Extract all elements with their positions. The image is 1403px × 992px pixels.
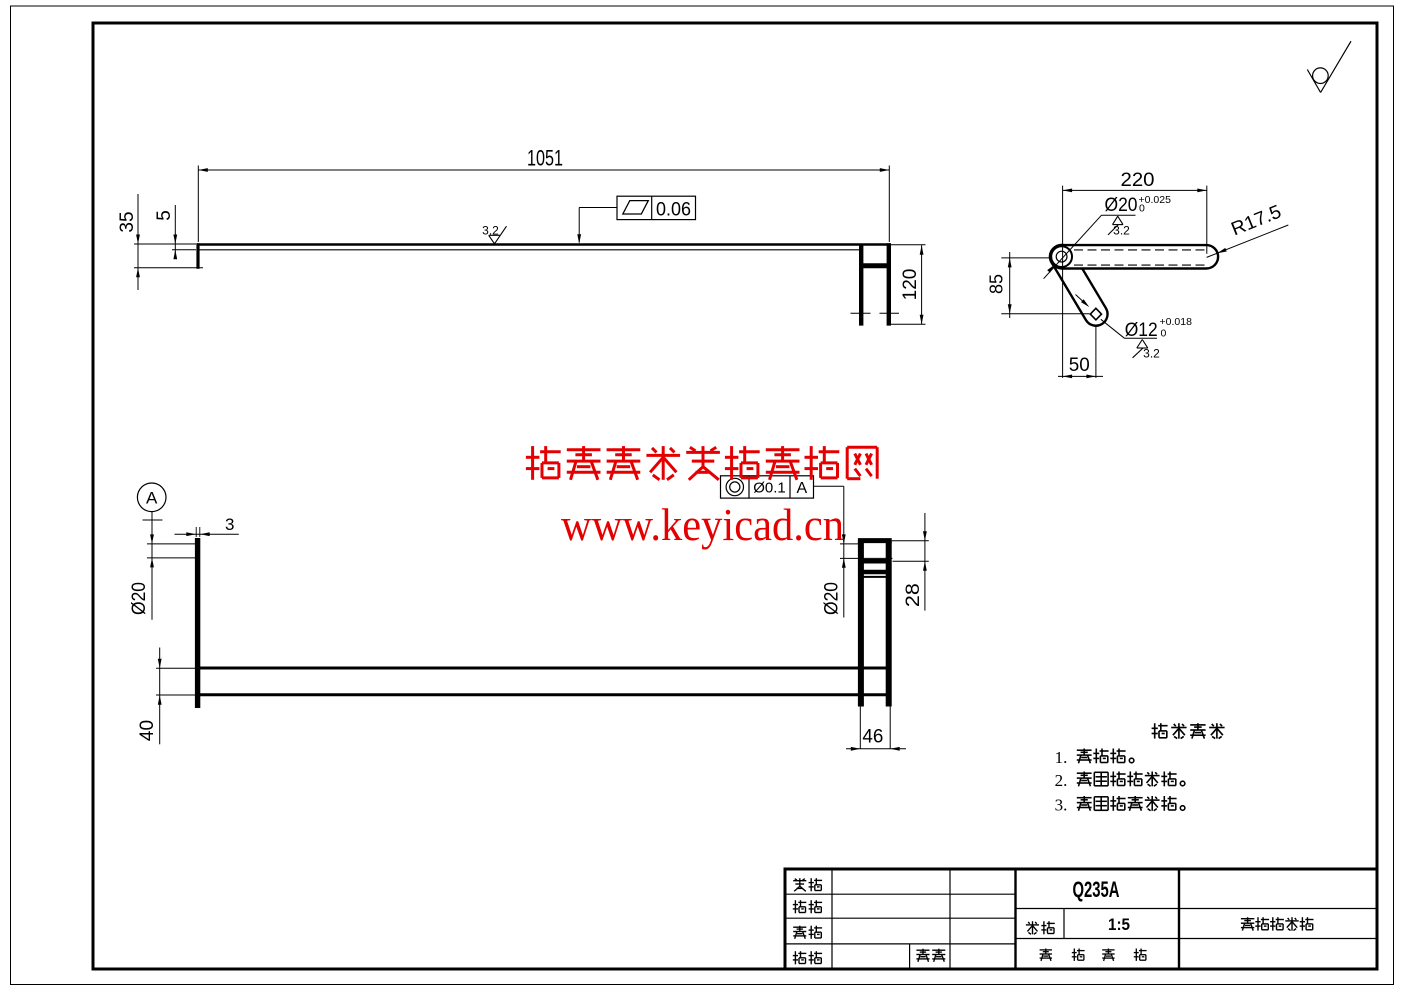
svg-text:Ø20: Ø20 xyxy=(1105,195,1138,216)
svg-text:120: 120 xyxy=(900,269,921,301)
svg-text:0: 0 xyxy=(1161,328,1167,340)
svg-text:28: 28 xyxy=(903,583,924,607)
svg-text:0: 0 xyxy=(1139,203,1145,215)
svg-text:Q235A: Q235A xyxy=(1073,877,1120,902)
svg-text:1.: 1. xyxy=(1055,748,1068,767)
svg-text:220: 220 xyxy=(1121,170,1155,191)
svg-text:0.06: 0.06 xyxy=(656,200,691,221)
svg-text:3.2: 3.2 xyxy=(1143,347,1160,361)
svg-text:Ø20: Ø20 xyxy=(822,582,843,615)
svg-text:1051: 1051 xyxy=(527,146,563,171)
svg-text:2.: 2. xyxy=(1055,771,1068,790)
svg-text:85: 85 xyxy=(986,274,1006,294)
svg-text:3.: 3. xyxy=(1055,796,1068,815)
svg-text:46: 46 xyxy=(862,727,883,748)
svg-text:35: 35 xyxy=(117,211,138,232)
svg-text:40: 40 xyxy=(137,720,158,741)
svg-text:3.2: 3.2 xyxy=(1113,224,1130,238)
svg-text:Ø0.1: Ø0.1 xyxy=(753,480,786,497)
svg-text:A: A xyxy=(796,480,807,497)
svg-text:50: 50 xyxy=(1069,355,1090,376)
svg-text:1:5: 1:5 xyxy=(1108,916,1130,934)
svg-text:www.keyicad.cn: www.keyicad.cn xyxy=(561,499,844,550)
svg-text:Ø20: Ø20 xyxy=(129,582,150,615)
svg-text:3.2: 3.2 xyxy=(482,224,499,238)
svg-text:Ø12: Ø12 xyxy=(1125,320,1158,341)
svg-text:5: 5 xyxy=(154,210,175,221)
svg-text:+0.018: +0.018 xyxy=(1160,316,1193,328)
svg-text:A: A xyxy=(146,489,158,508)
svg-text:3: 3 xyxy=(225,515,234,534)
